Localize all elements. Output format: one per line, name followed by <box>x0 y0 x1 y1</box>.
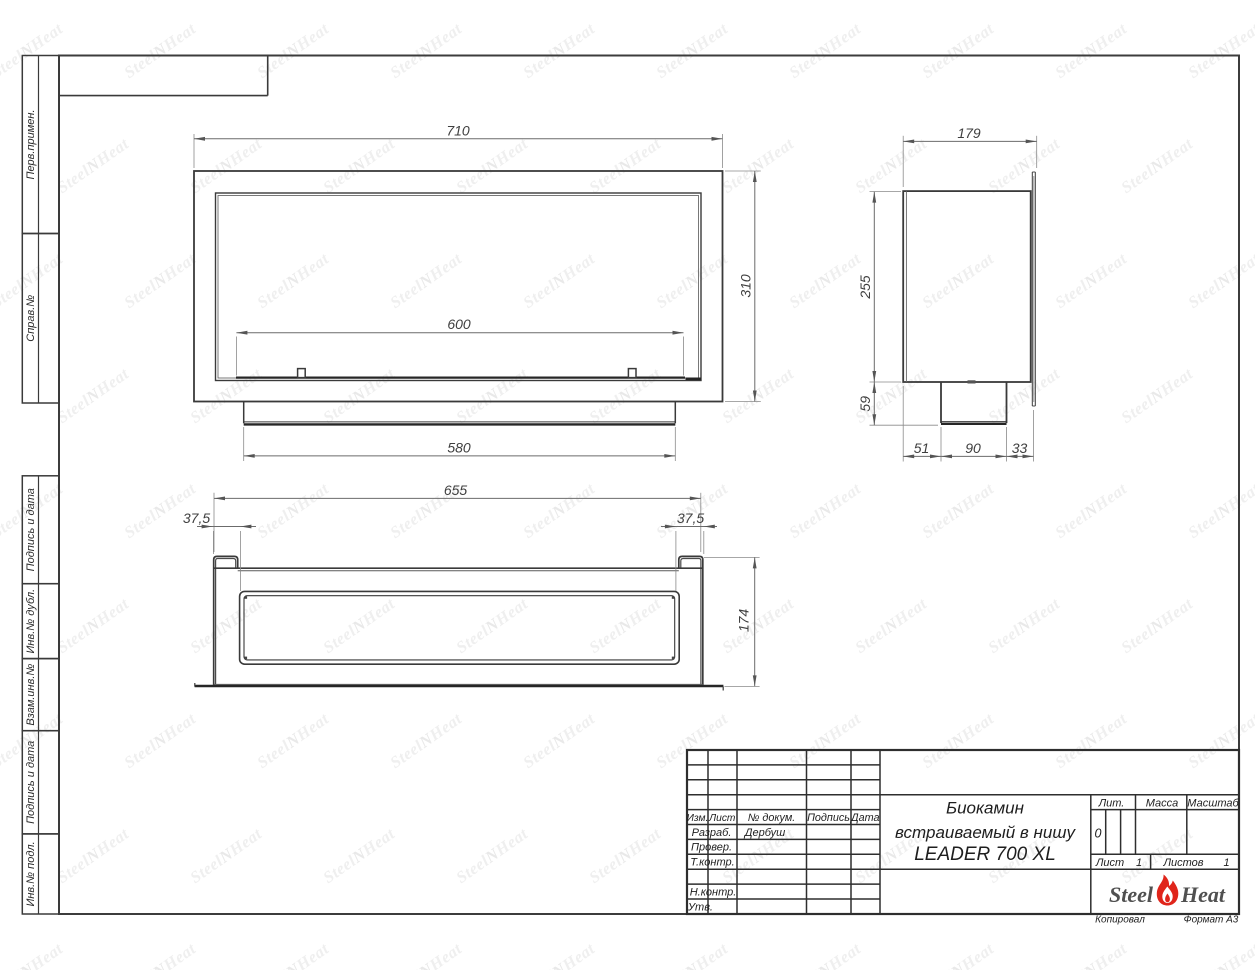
svg-text:SteelNHeat: SteelNHeat <box>585 594 664 657</box>
svg-text:SteelNHeat: SteelNHeat <box>0 19 66 82</box>
svg-text:SteelNHeat: SteelNHeat <box>851 594 930 657</box>
svg-text:SteelNHeat: SteelNHeat <box>120 19 199 82</box>
svg-text:0: 0 <box>1095 827 1102 841</box>
svg-text:SteelNHeat: SteelNHeat <box>652 709 731 772</box>
svg-text:SteelNHeat: SteelNHeat <box>1051 249 1130 312</box>
svg-text:Лит.: Лит. <box>1098 797 1125 809</box>
svg-text:встраиваемый в нишу: встраиваемый в нишу <box>895 823 1076 842</box>
svg-text:SteelNHeat: SteelNHeat <box>186 824 265 887</box>
svg-text:SteelNHeat: SteelNHeat <box>918 709 997 772</box>
svg-text:SteelNHeat: SteelNHeat <box>319 134 398 197</box>
svg-text:SteelNHeat: SteelNHeat <box>1184 249 1255 312</box>
svg-text:Steel: Steel <box>1109 882 1154 907</box>
svg-text:SteelNHeat: SteelNHeat <box>718 594 797 657</box>
svg-text:90: 90 <box>965 440 981 456</box>
svg-text:SteelNHeat: SteelNHeat <box>53 594 132 657</box>
svg-text:Листов: Листов <box>1162 857 1203 869</box>
svg-text:SteelNHeat: SteelNHeat <box>851 134 930 197</box>
svg-text:SteelNHeat: SteelNHeat <box>918 479 997 542</box>
svg-text:SteelNHeat: SteelNHeat <box>386 249 465 312</box>
svg-text:SteelNHeat: SteelNHeat <box>918 249 997 312</box>
svg-text:SteelNHeat: SteelNHeat <box>186 364 265 427</box>
svg-text:SteelNHeat: SteelNHeat <box>1250 364 1255 427</box>
svg-text:SteelNHeat: SteelNHeat <box>253 19 332 82</box>
svg-text:SteelNHeat: SteelNHeat <box>1051 709 1130 772</box>
svg-text:51: 51 <box>914 440 930 456</box>
svg-text:SteelNHeat: SteelNHeat <box>186 134 265 197</box>
svg-text:SteelNHeat: SteelNHeat <box>519 249 598 312</box>
svg-text:SteelNHeat: SteelNHeat <box>1250 594 1255 657</box>
svg-text:1: 1 <box>1136 857 1142 869</box>
svg-text:SteelNHeat: SteelNHeat <box>0 939 66 970</box>
svg-text:174: 174 <box>736 609 752 633</box>
svg-text:SteelNHeat: SteelNHeat <box>319 364 398 427</box>
svg-text:SteelNHeat: SteelNHeat <box>718 134 797 197</box>
svg-text:33: 33 <box>1012 440 1028 456</box>
svg-text:SteelNHeat: SteelNHeat <box>253 709 332 772</box>
svg-text:580: 580 <box>447 439 471 455</box>
svg-text:1: 1 <box>1223 857 1229 869</box>
svg-text:SteelNHeat: SteelNHeat <box>585 364 664 427</box>
svg-text:Взам.инв.№: Взам.инв.№ <box>25 664 37 726</box>
svg-text:SteelNHeat: SteelNHeat <box>984 594 1063 657</box>
svg-text:SteelNHeat: SteelNHeat <box>519 479 598 542</box>
svg-text:SteelNHeat: SteelNHeat <box>53 134 132 197</box>
svg-text:SteelNHeat: SteelNHeat <box>120 939 199 970</box>
svg-text:SteelNHeat: SteelNHeat <box>253 249 332 312</box>
svg-text:Лист: Лист <box>708 813 736 824</box>
svg-text:Heat: Heat <box>1180 882 1226 907</box>
svg-text:SteelNHeat: SteelNHeat <box>319 594 398 657</box>
svg-text:SteelNHeat: SteelNHeat <box>1250 134 1255 197</box>
svg-text:SteelNHeat: SteelNHeat <box>1117 134 1196 197</box>
svg-text:Изм.: Изм. <box>687 813 709 824</box>
svg-text:Формат А3: Формат А3 <box>1184 915 1239 926</box>
svg-text:SteelNHeat: SteelNHeat <box>53 824 132 887</box>
svg-text:SteelNHeat: SteelNHeat <box>519 19 598 82</box>
svg-text:Утв.: Утв. <box>687 901 713 913</box>
svg-text:SteelNHeat: SteelNHeat <box>1051 19 1130 82</box>
svg-text:179: 179 <box>957 125 981 141</box>
svg-text:Провер.: Провер. <box>691 842 732 854</box>
svg-text:310: 310 <box>738 274 754 298</box>
svg-text:SteelNHeat: SteelNHeat <box>452 824 531 887</box>
svg-text:Подпись и дата: Подпись и дата <box>25 488 37 571</box>
svg-text:710: 710 <box>446 122 470 138</box>
svg-text:SteelNHeat: SteelNHeat <box>1184 479 1255 542</box>
svg-text:SteelNHeat: SteelNHeat <box>1117 364 1196 427</box>
svg-text:59: 59 <box>857 396 873 412</box>
svg-text:Подпись: Подпись <box>807 812 850 824</box>
svg-text:SteelNHeat: SteelNHeat <box>785 19 864 82</box>
svg-text:Дербуш: Дербуш <box>743 827 786 839</box>
svg-text:Дата: Дата <box>850 812 879 824</box>
svg-text:Масса: Масса <box>1146 797 1179 809</box>
svg-text:SteelNHeat: SteelNHeat <box>984 364 1063 427</box>
svg-text:SteelNHeat: SteelNHeat <box>984 134 1063 197</box>
svg-text:SteelNHeat: SteelNHeat <box>918 939 997 970</box>
svg-text:SteelNHeat: SteelNHeat <box>718 364 797 427</box>
svg-text:SteelNHeat: SteelNHeat <box>851 364 930 427</box>
svg-text:SteelNHeat: SteelNHeat <box>319 824 398 887</box>
svg-text:SteelNHeat: SteelNHeat <box>1117 594 1196 657</box>
svg-text:Т.контр.: Т.контр. <box>690 857 734 869</box>
svg-text:Подпись и дата: Подпись и дата <box>25 741 37 824</box>
svg-text:LEADER 700 XL: LEADER 700 XL <box>914 844 1056 865</box>
svg-text:SteelNHeat: SteelNHeat <box>120 709 199 772</box>
svg-text:37,5: 37,5 <box>183 510 210 526</box>
svg-text:SteelNHeat: SteelNHeat <box>652 249 731 312</box>
svg-text:SteelNHeat: SteelNHeat <box>918 19 997 82</box>
svg-text:SteelNHeat: SteelNHeat <box>53 364 132 427</box>
svg-text:SteelNHeat: SteelNHeat <box>1184 19 1255 82</box>
svg-text:Инв.№ дубл.: Инв.№ дубл. <box>25 589 37 654</box>
svg-text:SteelNHeat: SteelNHeat <box>452 134 531 197</box>
svg-text:SteelNHeat: SteelNHeat <box>1051 939 1130 970</box>
svg-text:Масштаб: Масштаб <box>1187 797 1239 809</box>
svg-text:SteelNHeat: SteelNHeat <box>1184 939 1255 970</box>
svg-text:SteelNHeat: SteelNHeat <box>452 364 531 427</box>
svg-text:SteelNHeat: SteelNHeat <box>652 19 731 82</box>
svg-text:SteelNHeat: SteelNHeat <box>1051 479 1130 542</box>
svg-text:SteelNHeat: SteelNHeat <box>386 19 465 82</box>
svg-text:SteelNHeat: SteelNHeat <box>585 824 664 887</box>
svg-text:SteelNHeat: SteelNHeat <box>386 709 465 772</box>
svg-text:SteelNHeat: SteelNHeat <box>253 479 332 542</box>
svg-text:SteelNHeat: SteelNHeat <box>452 594 531 657</box>
svg-text:Справ.№: Справ.№ <box>25 295 37 342</box>
svg-text:№ докум.: № докум. <box>748 812 796 824</box>
svg-text:Лист: Лист <box>1095 857 1124 869</box>
svg-text:SteelNHeat: SteelNHeat <box>785 709 864 772</box>
svg-text:SteelNHeat: SteelNHeat <box>1117 824 1196 887</box>
svg-text:Н.контр.: Н.контр. <box>690 886 737 898</box>
svg-text:600: 600 <box>447 316 471 332</box>
svg-text:Разраб.: Разраб. <box>692 827 732 839</box>
svg-text:SteelNHeat: SteelNHeat <box>186 594 265 657</box>
svg-text:SteelNHeat: SteelNHeat <box>253 939 332 970</box>
svg-text:SteelNHeat: SteelNHeat <box>120 249 199 312</box>
svg-text:37,5: 37,5 <box>677 510 704 526</box>
svg-text:Перв.примен.: Перв.примен. <box>25 109 37 179</box>
svg-text:SteelNHeat: SteelNHeat <box>519 939 598 970</box>
svg-text:SteelNHeat: SteelNHeat <box>386 939 465 970</box>
svg-text:Биокамин: Биокамин <box>946 799 1025 818</box>
svg-text:SteelNHeat: SteelNHeat <box>785 249 864 312</box>
svg-text:SteelNHeat: SteelNHeat <box>519 709 598 772</box>
svg-text:655: 655 <box>444 482 468 498</box>
svg-text:SteelNHeat: SteelNHeat <box>785 479 864 542</box>
svg-text:SteelNHeat: SteelNHeat <box>585 134 664 197</box>
svg-text:SteelNHeat: SteelNHeat <box>1184 709 1255 772</box>
svg-text:SteelNHeat: SteelNHeat <box>1250 824 1255 887</box>
svg-text:255: 255 <box>857 275 873 300</box>
svg-text:Копировал: Копировал <box>1095 915 1145 926</box>
svg-text:Инв.№ подл.: Инв.№ подл. <box>25 841 37 906</box>
svg-text:SteelNHeat: SteelNHeat <box>652 939 731 970</box>
svg-text:SteelNHeat: SteelNHeat <box>785 939 864 970</box>
